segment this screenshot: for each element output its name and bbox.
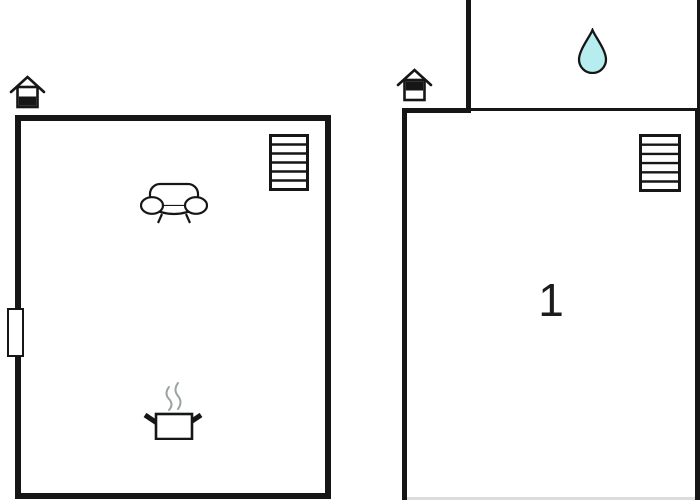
wall-room1-right (695, 110, 700, 500)
window-icon (7, 308, 24, 357)
house-first-floor-icon (396, 68, 433, 103)
stairs-icon (639, 134, 681, 192)
room-number-label: 1 (503, 277, 599, 323)
cooking-pot-icon (142, 378, 204, 440)
stairs-icon (269, 134, 309, 191)
wall-partition-top (466, 0, 471, 112)
wall-room1-top (402, 108, 471, 113)
wall-bathroom-bottom (471, 108, 700, 111)
wall-room1-left (402, 108, 407, 500)
water-drop-icon (577, 28, 608, 74)
house-ground-floor-icon (9, 75, 46, 110)
sofa-icon (140, 181, 208, 224)
floorplan: 1 (0, 0, 700, 500)
